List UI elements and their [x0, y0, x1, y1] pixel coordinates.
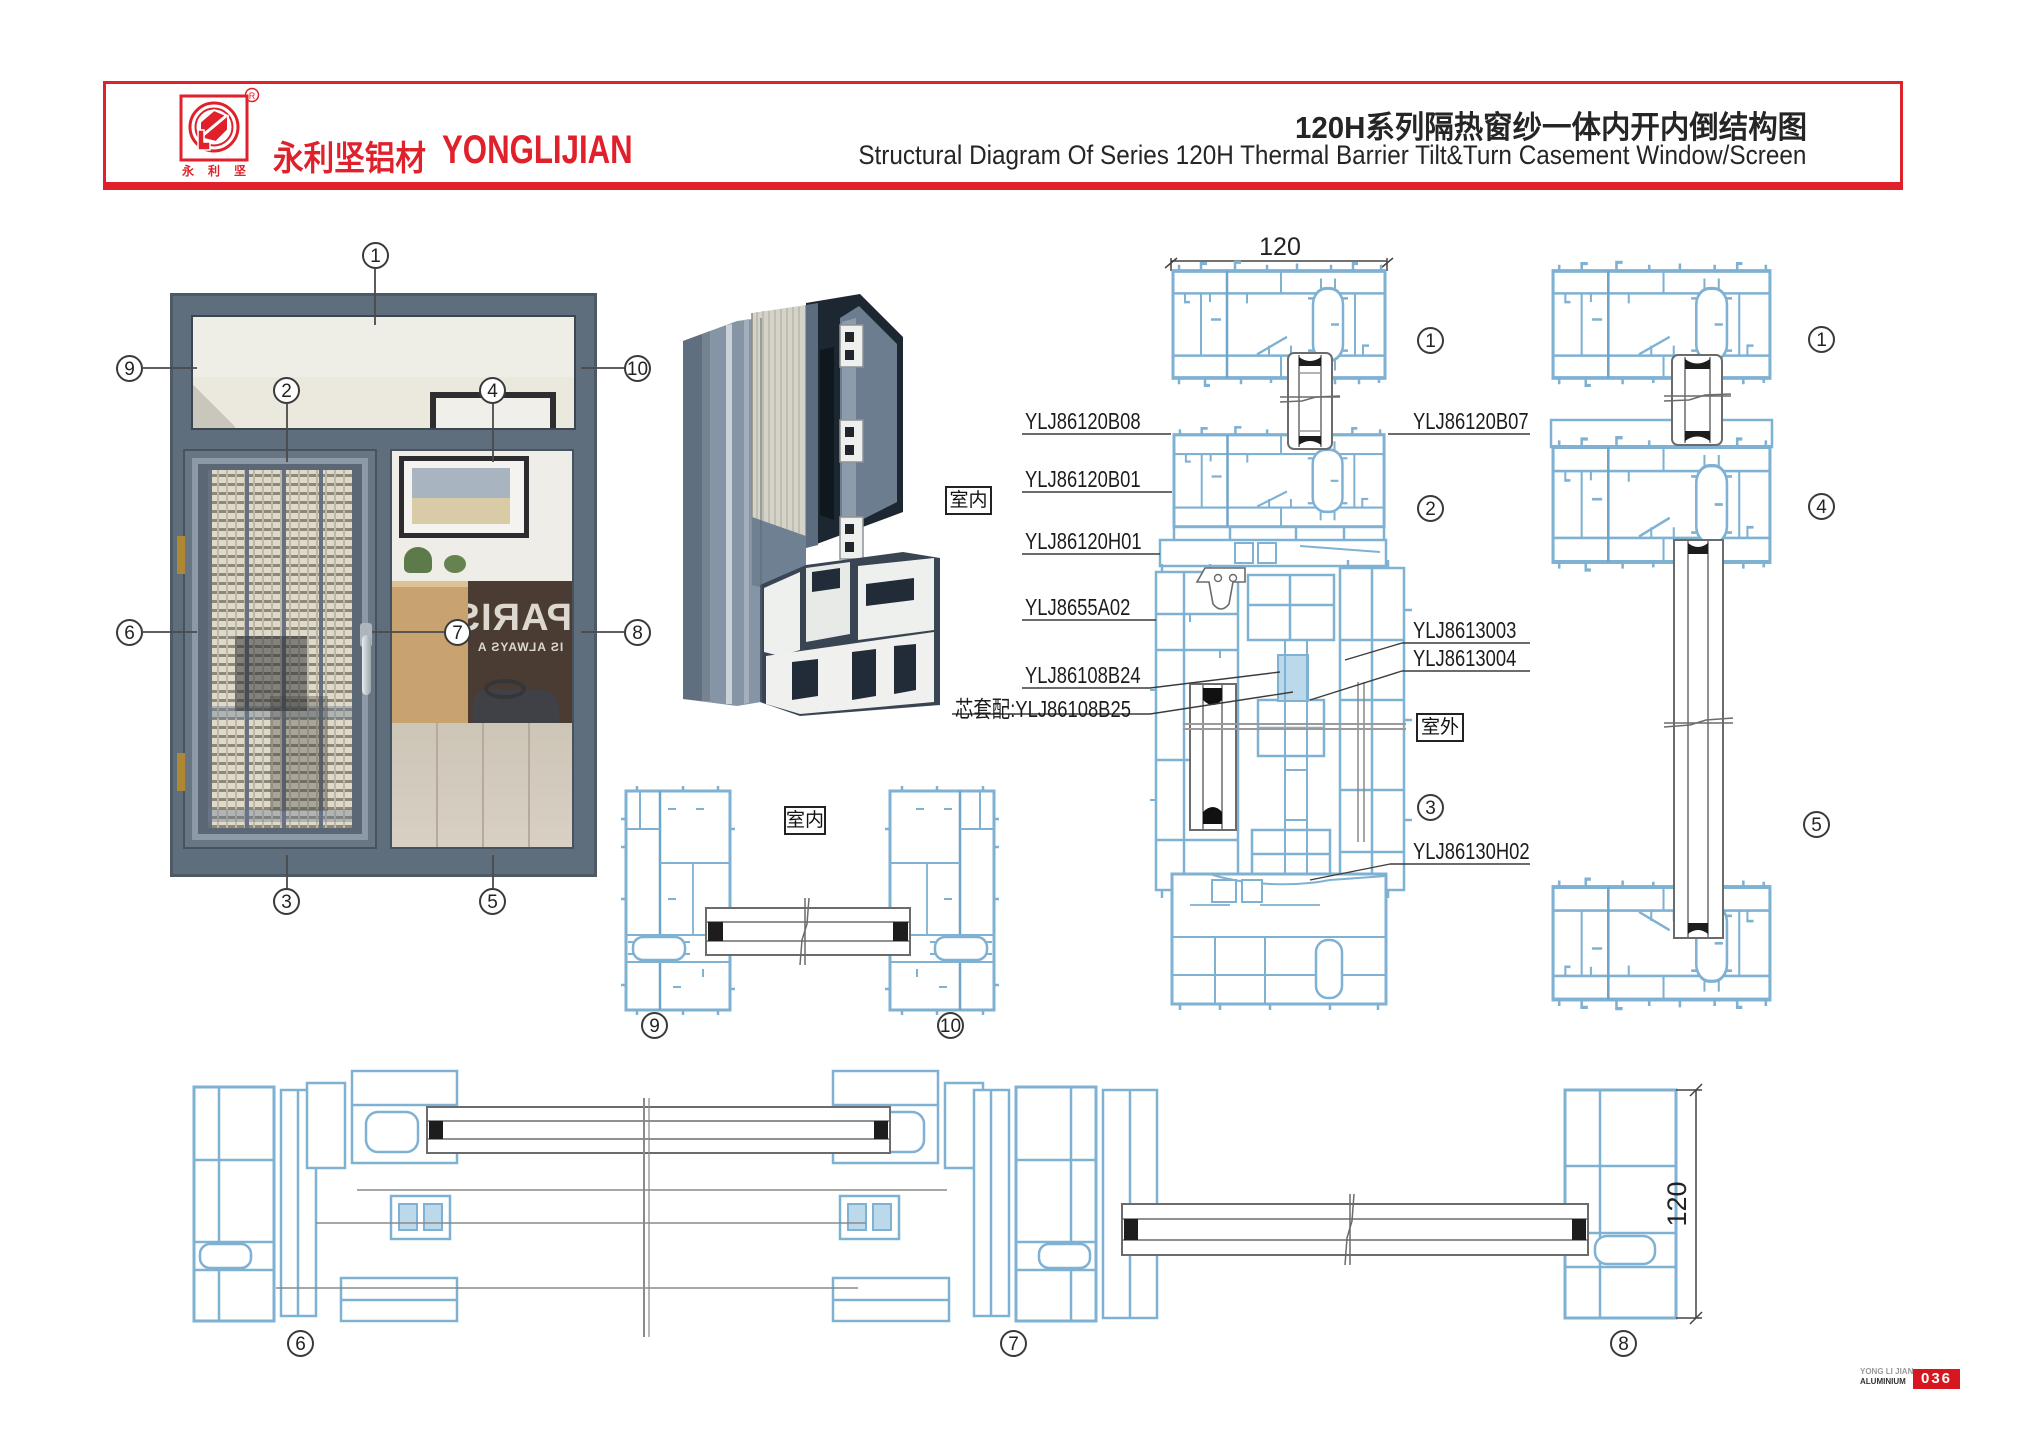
- svg-text:120: 120: [1259, 233, 1301, 261]
- svg-text:120: 120: [1662, 1181, 1692, 1226]
